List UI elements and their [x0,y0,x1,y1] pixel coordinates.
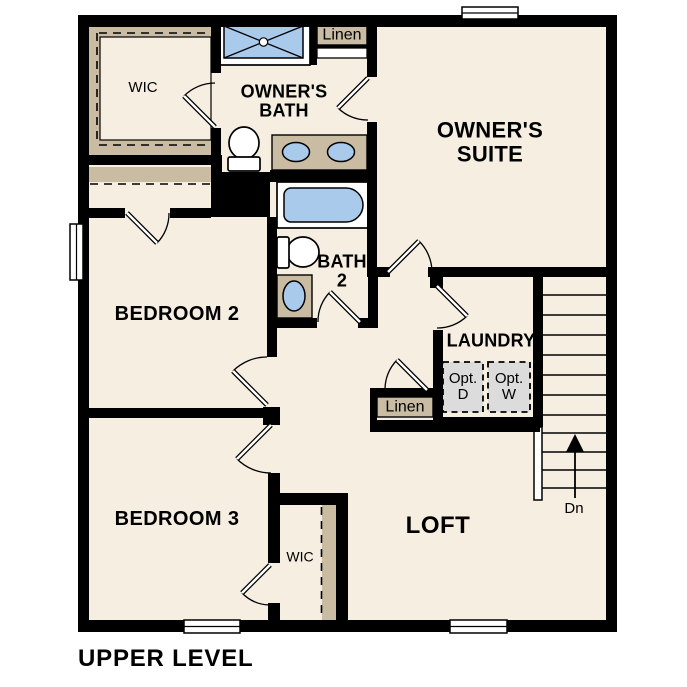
window-icon [184,620,240,633]
bedroom2-label: BEDROOM 2 [115,304,240,326]
bath2-toilet [277,237,319,268]
optional-washer-label: Opt. W [495,371,523,403]
bedroom2-closet-shelving [89,167,211,184]
loft-label: LOFT [406,513,471,539]
window-icon [462,7,518,19]
window-icon [70,224,83,280]
bedroom3-wic-shelving [322,505,337,621]
sink-icon [283,143,310,162]
bath2-vanity [277,275,312,318]
linen-upper-label: Linen [322,26,361,43]
laundry-label: LAUNDRY [447,331,536,350]
bedroom3-label: BEDROOM 3 [115,509,240,531]
floor-plan: WIC OWNER'S BATH Linen OWNER'S SUITE BAT… [0,0,687,687]
owners-suite-label: OWNER'S SUITE [437,118,543,166]
owners-bath-toilet [228,127,260,171]
page-title: UPPER LEVEL [78,645,254,673]
stair-railing [534,427,542,500]
sink-icon [283,281,305,311]
bedroom3-wic-label: WIC [286,549,313,564]
linen-hall-label: Linen [385,398,424,415]
owners-wic-label: WIC [128,80,157,96]
bath2-label: BATH 2 [317,253,366,292]
owners-bath-label: OWNER'S BATH [241,83,328,122]
stairs-down-label: Dn [564,501,583,517]
window-icon [450,620,507,633]
optional-dryer-label: Opt. D [449,371,477,403]
owners-bath-vanity [272,135,367,170]
shower-drain-icon [259,38,267,46]
bath2-tub [277,182,368,228]
floor-plan-drawing [0,0,687,687]
sink-icon [328,143,355,162]
